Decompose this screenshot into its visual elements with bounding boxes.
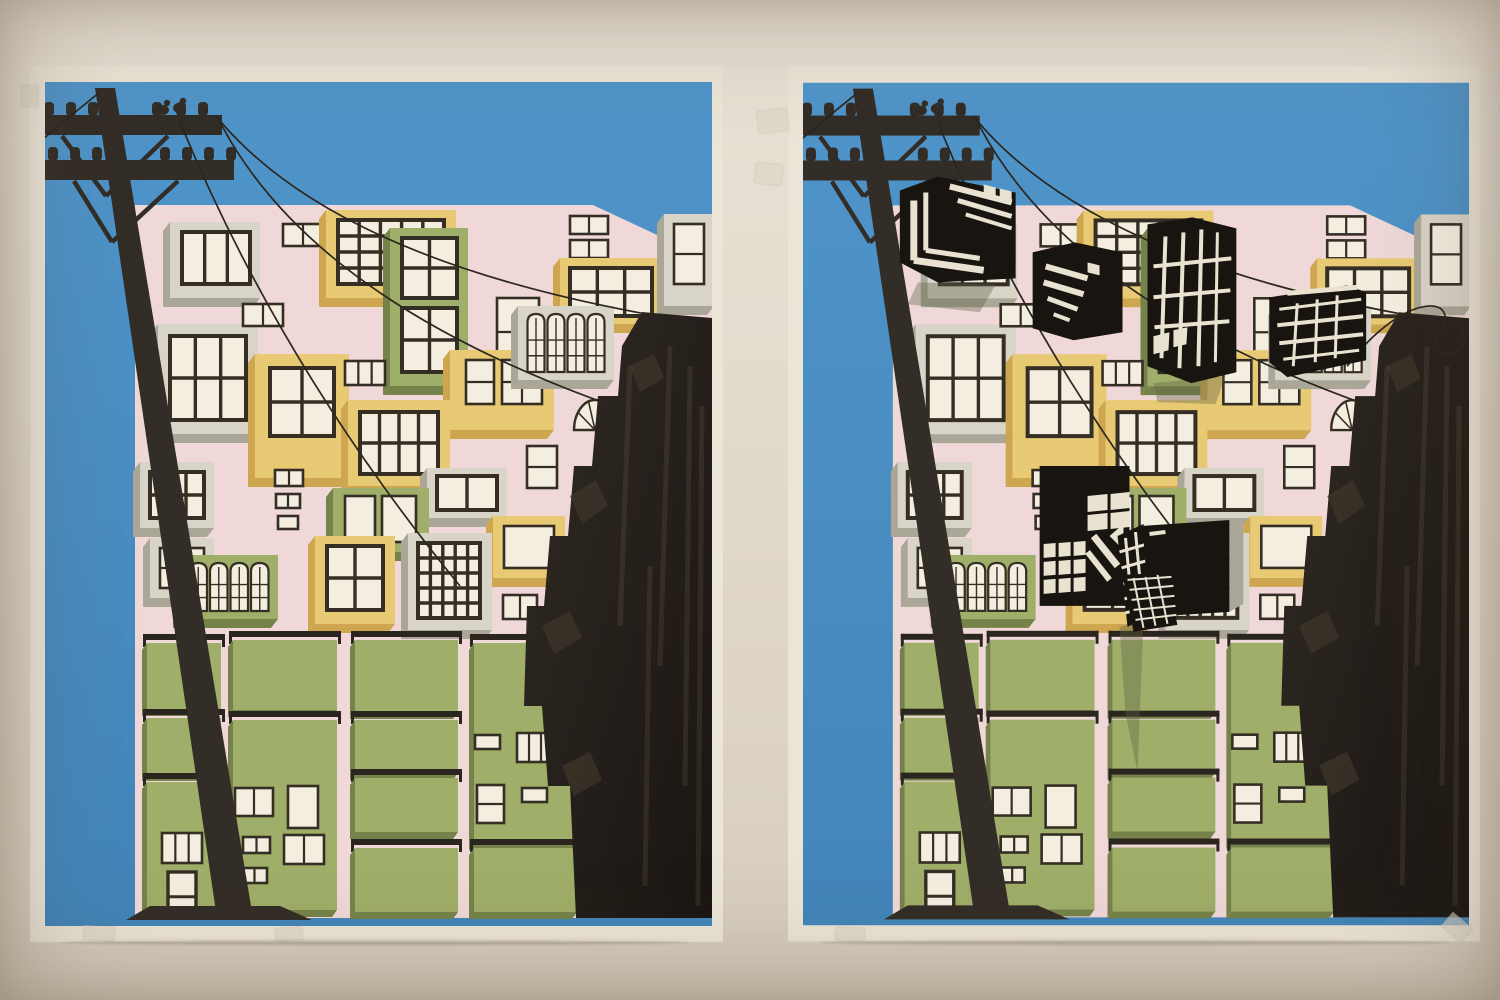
right-print [788,66,1480,942]
right-print-svg [788,66,1480,942]
tape-piece [276,927,303,941]
left-print [30,66,723,942]
bird-silhouette [931,104,943,114]
bird-silhouette [915,106,927,116]
artwork [796,83,1480,926]
bird-silhouette [173,103,185,113]
tape-piece [836,928,864,941]
tape-piece [755,163,783,185]
tape-piece [84,925,115,941]
tape-piece [757,108,790,134]
tape-piece [22,86,38,106]
bird-silhouette [157,105,169,115]
paper-bottom-shadow [820,940,1450,945]
gallery-photo [0,0,1500,1000]
artwork [38,82,714,926]
paper-bottom-shadow [60,940,690,945]
left-print-svg [30,66,723,942]
